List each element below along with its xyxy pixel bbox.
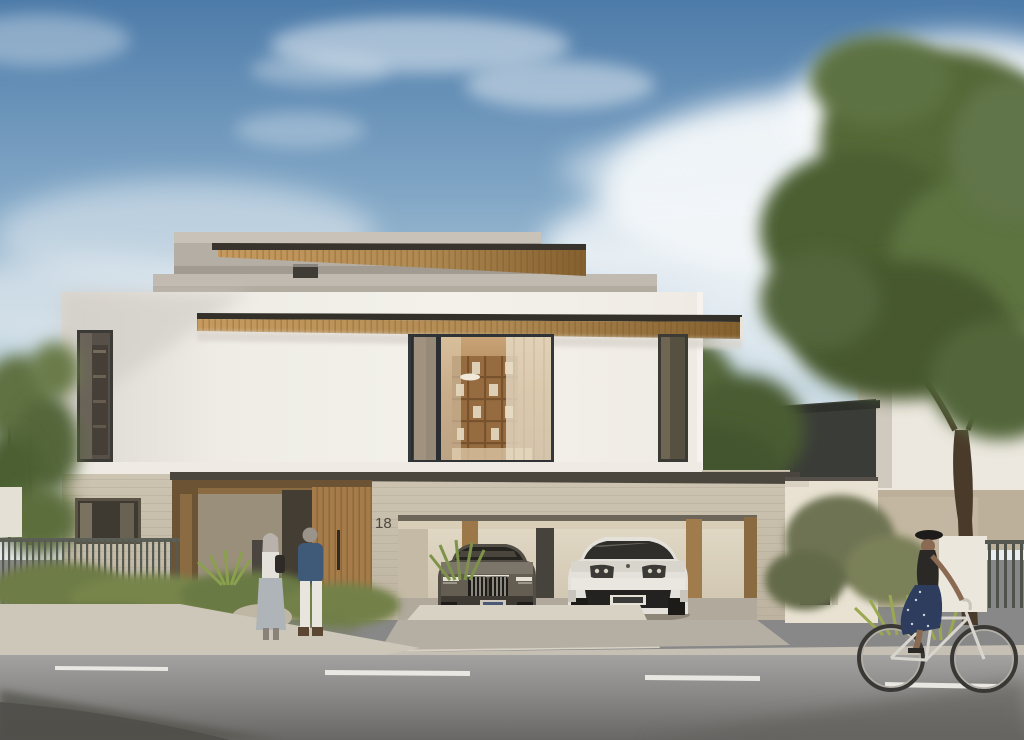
svg-text:18: 18 [375,515,392,532]
